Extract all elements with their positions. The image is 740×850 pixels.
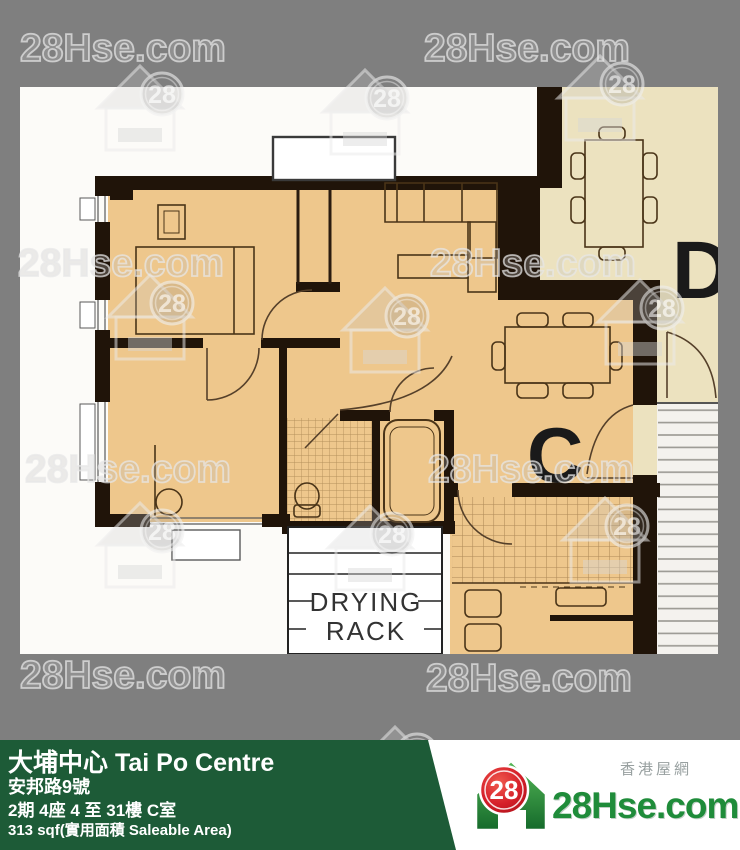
listing-image-page: { "watermark": { "text": "28Hse.com", "l… <box>0 0 740 850</box>
unit-c-label: C <box>527 411 583 499</box>
brand-name: 28Hse.com <box>552 785 738 827</box>
brand-number: 28 <box>490 775 519 805</box>
watermark-text: 28Hse.com <box>20 27 226 71</box>
watermark-text: 28Hse.com <box>424 27 630 71</box>
bay-window <box>273 137 395 180</box>
kitchen-floor-hatch <box>452 497 633 583</box>
floorplan-svg: DRYING RACK C D <box>20 87 718 654</box>
staircase <box>657 403 718 654</box>
brand-logo: 28 28Hse.com 香港屋網 <box>468 752 732 842</box>
brand-tagline-cn: 香港屋網 <box>620 758 692 779</box>
unit-d-label: D <box>672 225 718 316</box>
drying-rack-label-1: DRYING <box>310 587 423 617</box>
drying-rack: DRYING RACK <box>288 527 442 654</box>
drying-rack-label-2: RACK <box>326 616 406 646</box>
watermark-text: 28Hse.com <box>426 657 632 701</box>
estate-area-info: 313 sqf(實用面積 Saleable Area) <box>8 819 232 840</box>
brand-house-icon: 28 <box>468 752 552 836</box>
estate-floor-info: 2期 4座 4 至 31樓 C室 <box>8 796 176 821</box>
watermark-text: 28Hse.com <box>20 654 226 698</box>
footer-bar: 大埔中心 Tai Po Centre 安邦路9號 2期 4座 4 至 31樓 C… <box>0 740 740 850</box>
floorplan-photo: DRYING RACK C D <box>20 87 718 654</box>
